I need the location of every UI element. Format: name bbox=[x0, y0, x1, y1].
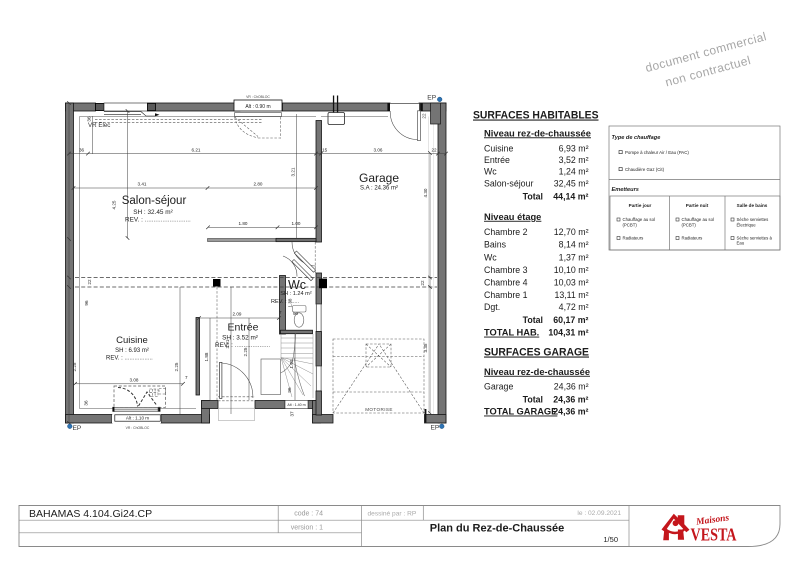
svg-text:Électrique: Électrique bbox=[737, 223, 757, 228]
svg-text:MOTORISE: MOTORISE bbox=[365, 407, 393, 412]
svg-text:3.08: 3.08 bbox=[130, 377, 139, 382]
svg-text:3.21: 3.21 bbox=[291, 167, 296, 176]
svg-text:3.21: 3.21 bbox=[225, 339, 230, 348]
svg-text:1.88: 1.88 bbox=[204, 352, 209, 361]
svg-text:dessiné par : RP: dessiné par : RP bbox=[368, 511, 417, 518]
svg-text:24,36 m²: 24,36 m² bbox=[553, 407, 588, 417]
svg-text:Eau: Eau bbox=[737, 241, 745, 246]
svg-text:1,37 m²: 1,37 m² bbox=[559, 252, 589, 262]
svg-text:Niveau rez-de-chaussée: Niveau rez-de-chaussée bbox=[484, 128, 591, 138]
svg-text:SH : 32.45 m²: SH : 32.45 m² bbox=[133, 209, 172, 216]
svg-text:Wc: Wc bbox=[484, 252, 497, 262]
svg-text:code : 74: code : 74 bbox=[294, 511, 323, 518]
svg-text:104,31 m²: 104,31 m² bbox=[548, 328, 588, 338]
svg-text:1,24 m²: 1,24 m² bbox=[559, 167, 589, 177]
svg-text:Bains: Bains bbox=[484, 240, 507, 250]
svg-text:Wc: Wc bbox=[288, 278, 306, 292]
svg-text:Dgt.: Dgt. bbox=[484, 302, 500, 312]
svg-text:Chambre 3: Chambre 3 bbox=[484, 265, 528, 275]
svg-text:Total: Total bbox=[523, 191, 543, 201]
svg-text:EP: EP bbox=[427, 95, 436, 102]
svg-text:1.38: 1.38 bbox=[288, 298, 293, 307]
svg-text:1.00: 1.00 bbox=[292, 221, 301, 226]
svg-text:Chauffage au sol: Chauffage au sol bbox=[623, 217, 655, 222]
svg-text:Chambre 4: Chambre 4 bbox=[484, 278, 528, 288]
svg-text:2.80: 2.80 bbox=[254, 182, 263, 187]
svg-text:Salon-séjour: Salon-séjour bbox=[122, 195, 187, 207]
svg-text:Partie jour: Partie jour bbox=[629, 203, 652, 208]
svg-text:Niveau rez-de-chaussée: Niveau rez-de-chaussée bbox=[484, 367, 590, 377]
svg-text:Salle de bains: Salle de bains bbox=[737, 203, 768, 208]
svg-text:Garage: Garage bbox=[359, 171, 399, 185]
svg-text:Total: Total bbox=[523, 395, 543, 405]
svg-text:3.41: 3.41 bbox=[138, 182, 147, 187]
svg-text:44,14 m²: 44,14 m² bbox=[553, 191, 588, 201]
svg-text:3.35: 3.35 bbox=[423, 343, 428, 352]
svg-text:(PCBT): (PCBT) bbox=[623, 223, 638, 228]
svg-text:Entrée: Entrée bbox=[228, 322, 259, 334]
svg-text:EP: EP bbox=[431, 425, 440, 432]
svg-text:1/50: 1/50 bbox=[603, 535, 618, 544]
svg-text:Cuisine: Cuisine bbox=[484, 144, 513, 154]
svg-text:Chauffage au sol: Chauffage au sol bbox=[682, 217, 714, 222]
svg-text:Alt : 1.40 m: Alt : 1.40 m bbox=[287, 403, 305, 407]
svg-text:Alt : 1.10 m: Alt : 1.10 m bbox=[126, 416, 149, 421]
svg-text:3,52 m²: 3,52 m² bbox=[559, 155, 589, 165]
svg-text:version : 1: version : 1 bbox=[291, 525, 323, 532]
svg-text:Pompe à chaleur Air / Eau (PAC: Pompe à chaleur Air / Eau (PAC) bbox=[625, 150, 689, 155]
svg-text:15: 15 bbox=[322, 148, 328, 153]
svg-text:24,36 m²: 24,36 m² bbox=[553, 395, 588, 405]
svg-text:12,70 m²: 12,70 m² bbox=[554, 227, 589, 237]
svg-text:7: 7 bbox=[279, 310, 282, 315]
svg-text:4.25: 4.25 bbox=[112, 200, 117, 209]
svg-text:SH : 6.93 m²: SH : 6.93 m² bbox=[115, 348, 149, 354]
svg-text:BAHAMAS 4.104.Gi24.CP: BAHAMAS 4.104.Gi24.CP bbox=[29, 508, 152, 520]
svg-text:Salon-séjour: Salon-séjour bbox=[484, 179, 533, 189]
svg-text:SURFACES HABITABLES: SURFACES HABITABLES bbox=[473, 110, 599, 122]
svg-text:Entrée: Entrée bbox=[484, 155, 510, 165]
svg-text:22: 22 bbox=[431, 148, 437, 153]
svg-text:Cuisine: Cuisine bbox=[116, 335, 148, 346]
svg-text:Alt : 0.90 m: Alt : 0.90 m bbox=[245, 104, 270, 110]
svg-text:VR : ChOBLOC: VR : ChOBLOC bbox=[246, 95, 270, 99]
svg-text:2.09: 2.09 bbox=[233, 312, 242, 317]
svg-text:SURFACES GARAGE: SURFACES GARAGE bbox=[484, 347, 589, 359]
svg-text:6,93 m²: 6,93 m² bbox=[559, 144, 589, 154]
svg-text:Plan du Rez-de-Chaussée: Plan du Rez-de-Chaussée bbox=[430, 523, 564, 535]
svg-text:24,36 m²: 24,36 m² bbox=[554, 382, 589, 392]
svg-text:TOTAL HAB.: TOTAL HAB. bbox=[484, 328, 539, 338]
svg-text:8,14 m²: 8,14 m² bbox=[559, 240, 589, 250]
svg-text:10,10 m²: 10,10 m² bbox=[554, 265, 589, 275]
svg-text:le : 02.09.2021: le : 02.09.2021 bbox=[577, 510, 621, 517]
svg-text:VESTA: VESTA bbox=[691, 525, 737, 545]
svg-text:Garage: Garage bbox=[484, 382, 513, 392]
svg-text:2.25: 2.25 bbox=[243, 347, 248, 356]
svg-text:REV. : .......................: REV. : .......................... bbox=[125, 217, 191, 224]
svg-text:37: 37 bbox=[290, 411, 295, 417]
svg-text:22: 22 bbox=[87, 279, 92, 285]
svg-text:Total: Total bbox=[523, 315, 543, 325]
svg-text:36: 36 bbox=[87, 116, 92, 122]
svg-text:7: 7 bbox=[185, 375, 188, 380]
svg-text:60,17 m²: 60,17 m² bbox=[553, 315, 588, 325]
svg-text:Radiateurs: Radiateurs bbox=[682, 236, 703, 241]
svg-text:6.21: 6.21 bbox=[192, 148, 201, 153]
svg-text:Type de chauffage: Type de chauffage bbox=[612, 135, 661, 141]
svg-text:4,72 m²: 4,72 m² bbox=[559, 302, 589, 312]
svg-text:S.A : 24.36 m²: S.A : 24.36 m² bbox=[360, 186, 398, 192]
svg-text:2.25: 2.25 bbox=[174, 362, 179, 371]
svg-text:10,03 m²: 10,03 m² bbox=[554, 278, 589, 288]
svg-text:REV. : .................: REV. : ................. bbox=[106, 356, 153, 362]
svg-text:4.30: 4.30 bbox=[423, 188, 428, 197]
svg-text:VR Elec: VR Elec bbox=[88, 122, 110, 129]
svg-text:2.25: 2.25 bbox=[72, 362, 77, 371]
svg-text:SH : 1.24 m²: SH : 1.24 m² bbox=[280, 291, 312, 297]
svg-text:Radiateurs: Radiateurs bbox=[623, 236, 644, 241]
svg-text:36: 36 bbox=[79, 148, 85, 153]
svg-text:Niveau étage: Niveau étage bbox=[484, 212, 541, 222]
svg-text:Sèche serviettes: Sèche serviettes bbox=[737, 217, 769, 222]
svg-text:Chambre 2: Chambre 2 bbox=[484, 227, 528, 237]
svg-text:96: 96 bbox=[84, 300, 89, 306]
svg-text:REV. : .......: REV. : ....... bbox=[271, 299, 300, 305]
svg-text:32,45 m²: 32,45 m² bbox=[554, 179, 589, 189]
svg-text:Emetteurs: Emetteurs bbox=[612, 187, 639, 193]
svg-text:3.06: 3.06 bbox=[374, 148, 383, 153]
svg-text:1.62: 1.62 bbox=[289, 359, 294, 368]
svg-text:90: 90 bbox=[293, 311, 299, 316]
svg-text:96: 96 bbox=[287, 387, 292, 393]
svg-text:Chambre 1: Chambre 1 bbox=[484, 290, 528, 300]
svg-text:22: 22 bbox=[421, 113, 426, 119]
svg-text:EP: EP bbox=[73, 425, 82, 432]
svg-text:VR : ChOBLOC: VR : ChOBLOC bbox=[126, 426, 150, 430]
svg-text:36: 36 bbox=[84, 400, 89, 406]
svg-text:(PCBT): (PCBT) bbox=[682, 223, 697, 228]
svg-text:Chaudière Gaz (Cit): Chaudière Gaz (Cit) bbox=[625, 167, 665, 172]
svg-text:13,11 m²: 13,11 m² bbox=[554, 290, 588, 300]
svg-text:1.80: 1.80 bbox=[239, 221, 248, 226]
svg-text:Partie nuit: Partie nuit bbox=[686, 203, 709, 208]
svg-text:22: 22 bbox=[420, 280, 425, 286]
svg-text:TOTAL GARAGE: TOTAL GARAGE bbox=[484, 407, 557, 417]
svg-text:Wc: Wc bbox=[484, 167, 497, 177]
